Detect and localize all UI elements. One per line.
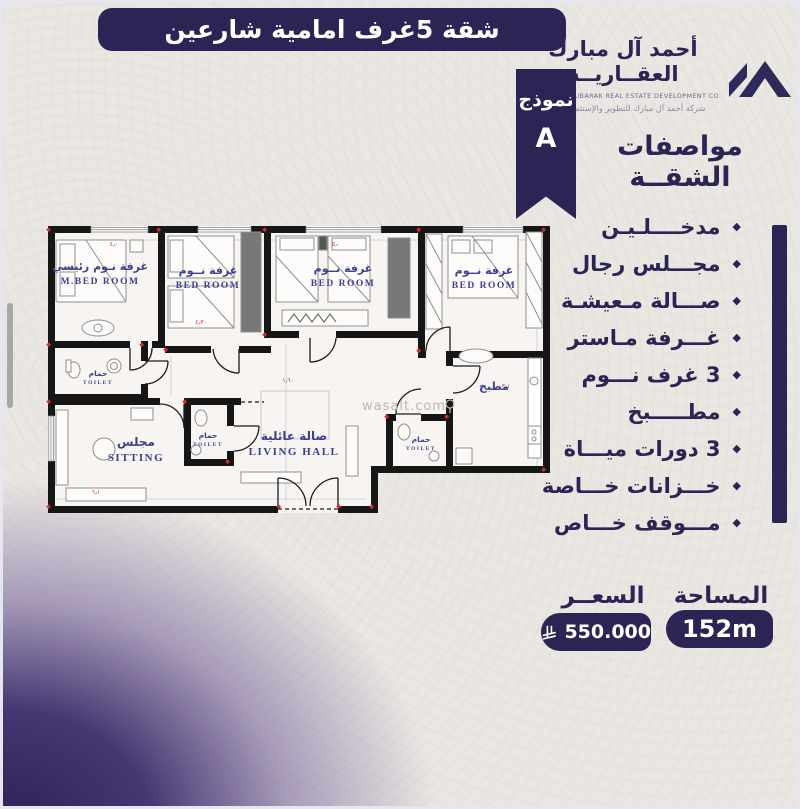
specs-heading: مواصفات الشقــة xyxy=(563,131,797,193)
room-label-sitting-ar: مجلس xyxy=(117,435,155,449)
company-name-line1: أحمد آل مبارك xyxy=(527,37,719,62)
diamond-bullet-icon: ◆ xyxy=(733,289,741,313)
title-text: شقة 5غرف امامية شارعين xyxy=(164,15,499,44)
room-label-bed3-ar: غرفة نــوم xyxy=(314,262,373,275)
room-label-toilet3-en: TOILET xyxy=(406,446,436,452)
area-badge: 152m xyxy=(666,610,773,648)
watermark-text: wasalt.com xyxy=(362,399,446,414)
room-label-toilet1-ar: حمام xyxy=(89,369,108,378)
room-label-bed2-ar: غرفة نــوم xyxy=(179,264,238,277)
room-label-living-ar: صالة عائلية xyxy=(261,429,327,443)
diamond-bullet-icon: ◆ xyxy=(733,400,741,424)
room-label-bed4-en: BED ROOM xyxy=(452,281,517,291)
room-label-bed4-ar: غرفة نــوم xyxy=(455,264,514,277)
price-badge: 550.000 xyxy=(541,613,651,651)
model-label: نموذج xyxy=(516,89,576,111)
diamond-bullet-icon: ◆ xyxy=(733,215,741,239)
floor-plan: ٤٫٠ ٥٫٠ ٤٫٣٠ ١٫٦٠ ٣٫١ ٦٫١ غرفة نـوم رئيس… xyxy=(36,216,568,564)
room-label-toilet2-en: TOILET xyxy=(193,442,223,448)
specs-side-bar xyxy=(772,225,787,523)
watermark: wasalt.com xyxy=(362,399,454,414)
diamond-bullet-icon: ◆ xyxy=(733,474,741,498)
diamond-bullet-icon: ◆ xyxy=(733,252,741,276)
room-label-kitchen-ar: مطبخ xyxy=(479,380,509,393)
area-value: 152m xyxy=(682,615,757,643)
saudi-riyal-icon xyxy=(541,624,557,641)
price-value: 550.000 xyxy=(564,621,651,643)
price-label: السعــر xyxy=(553,583,653,609)
flyer-page: شقة 5غرف امامية شارعين أحمد آل مبارك الع… xyxy=(0,0,800,809)
left-edge-bar-decoration xyxy=(7,303,13,408)
svg-text:٥٫٠: ٥٫٠ xyxy=(332,241,340,248)
room-label-toilet2-ar: حمام xyxy=(199,431,218,440)
room-label-master-en: M.BED ROOM xyxy=(61,277,140,287)
title-banner: شقة 5غرف امامية شارعين xyxy=(98,8,566,51)
svg-text:٦٫١: ٦٫١ xyxy=(92,489,100,496)
room-label-bed2-en: BED ROOM xyxy=(176,281,241,291)
room-label-bed3-en: BED ROOM xyxy=(311,279,376,289)
room-label-master-ar: غرفة نـوم رئيسي xyxy=(52,260,148,273)
svg-text:٤٫٣٠: ٤٫٣٠ xyxy=(195,319,207,326)
diamond-bullet-icon: ◆ xyxy=(733,437,741,461)
company-logo: أحمد آل مبارك العقــاريــة AHMED AL MUBA… xyxy=(589,37,795,113)
diamond-bullet-icon: ◆ xyxy=(733,326,741,350)
svg-text:٤٫٠: ٤٫٠ xyxy=(110,241,118,248)
diamond-bullet-icon: ◆ xyxy=(733,511,741,535)
diamond-bullet-icon: ◆ xyxy=(733,363,741,387)
room-label-toilet3-ar: حمام xyxy=(412,435,431,444)
room-label-living-en: LIVING HALL xyxy=(249,446,340,458)
room-label-sitting-en: SITTING xyxy=(108,452,164,464)
company-logo-icon xyxy=(725,37,795,99)
room-label-toilet1-en: TOILET xyxy=(83,380,113,386)
area-label: المساحة xyxy=(671,583,771,609)
svg-text:١٫٦٠: ١٫٦٠ xyxy=(282,377,294,384)
